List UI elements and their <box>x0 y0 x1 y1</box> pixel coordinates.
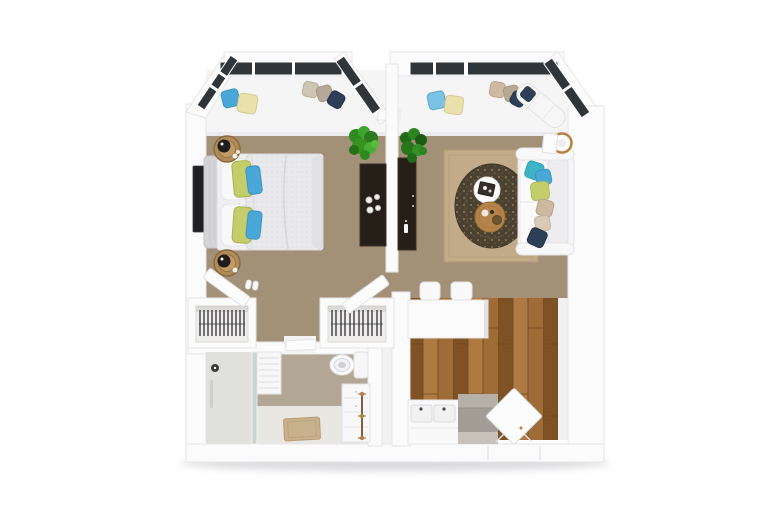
breakfast-bar <box>408 300 488 338</box>
louvered-shelf <box>257 352 281 394</box>
bottle-decor <box>404 224 408 233</box>
candle-decor <box>366 197 372 203</box>
window-mullion <box>433 61 436 76</box>
bottom-wall <box>186 444 604 462</box>
vanity-cabinet <box>342 384 370 442</box>
duvet-fold-edge <box>312 156 322 248</box>
nightstand-bottom <box>214 250 240 276</box>
window-mullion <box>464 61 468 76</box>
bathroom-door-panel <box>286 339 316 350</box>
tan-pillow <box>535 198 554 217</box>
candle-decor <box>375 195 380 200</box>
glass-shower <box>206 352 257 444</box>
faucet <box>442 407 445 410</box>
floor-plan-svg <box>0 0 780 520</box>
sofa <box>516 148 574 255</box>
window-mullion <box>292 61 295 76</box>
table-lamp <box>218 140 231 153</box>
nightstand-top <box>214 136 240 162</box>
blue-pillow <box>427 90 447 110</box>
white-coffee-table <box>474 177 500 203</box>
wall-tv <box>193 166 205 232</box>
living-media-console <box>398 158 416 250</box>
toilet-tank <box>354 352 368 378</box>
sink-counter <box>408 400 460 444</box>
leaning-art-frame <box>542 133 558 153</box>
living-bay-window <box>410 62 558 75</box>
plate-decor <box>482 210 489 217</box>
bar-stool <box>451 282 472 300</box>
partition-wall <box>386 64 398 272</box>
flower-decor <box>233 268 238 273</box>
kitchen-left-wall <box>392 292 410 446</box>
bowl-decor <box>493 216 502 225</box>
blue-pillow <box>245 165 262 194</box>
bar-edge-shadow <box>484 300 488 338</box>
bedroom-media-console <box>360 164 386 246</box>
shower-glass-panel <box>252 352 257 444</box>
faucet <box>419 407 422 410</box>
hallway <box>284 336 316 354</box>
bedroom-bay-window <box>220 62 342 75</box>
bath-mat <box>283 417 320 441</box>
candle-decor <box>376 206 381 211</box>
shower-rail <box>210 380 213 408</box>
cream-pillow <box>444 95 464 115</box>
door-handle <box>520 427 523 430</box>
bar-stool <box>420 282 440 300</box>
table-lamp <box>218 255 231 268</box>
wood-coffee-table <box>475 202 505 232</box>
left-wall <box>186 104 206 460</box>
floor-plan <box>186 52 604 462</box>
candle-decor <box>367 207 373 213</box>
green-pillow <box>530 181 550 201</box>
window-mullion <box>252 61 255 76</box>
blue-pillow <box>246 210 263 239</box>
armrest <box>516 243 574 255</box>
flower-decor <box>233 154 238 159</box>
floor-plan-stage <box>0 0 780 520</box>
cream-pillow <box>236 93 258 115</box>
